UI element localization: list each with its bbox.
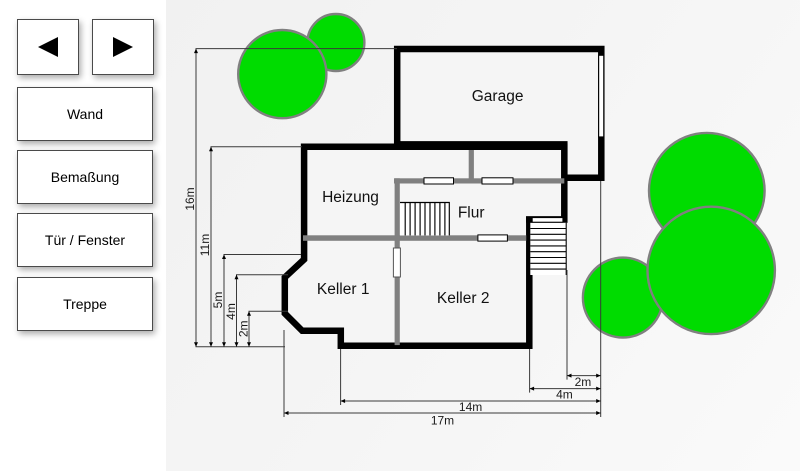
svg-text:Heizung: Heizung [322,189,379,206]
svg-text:4m: 4m [556,387,573,401]
svg-text:Keller 1: Keller 1 [317,281,370,298]
svg-text:14m: 14m [459,400,482,414]
svg-text:2m: 2m [236,320,250,337]
svg-text:16m: 16m [183,187,197,210]
svg-text:Garage: Garage [472,88,524,105]
svg-text:4m: 4m [224,303,238,320]
svg-text:11m: 11m [198,234,212,256]
svg-text:2m: 2m [575,375,592,389]
svg-text:Keller 2: Keller 2 [437,290,490,307]
svg-text:Flur: Flur [458,204,485,221]
svg-text:17m: 17m [431,414,454,428]
